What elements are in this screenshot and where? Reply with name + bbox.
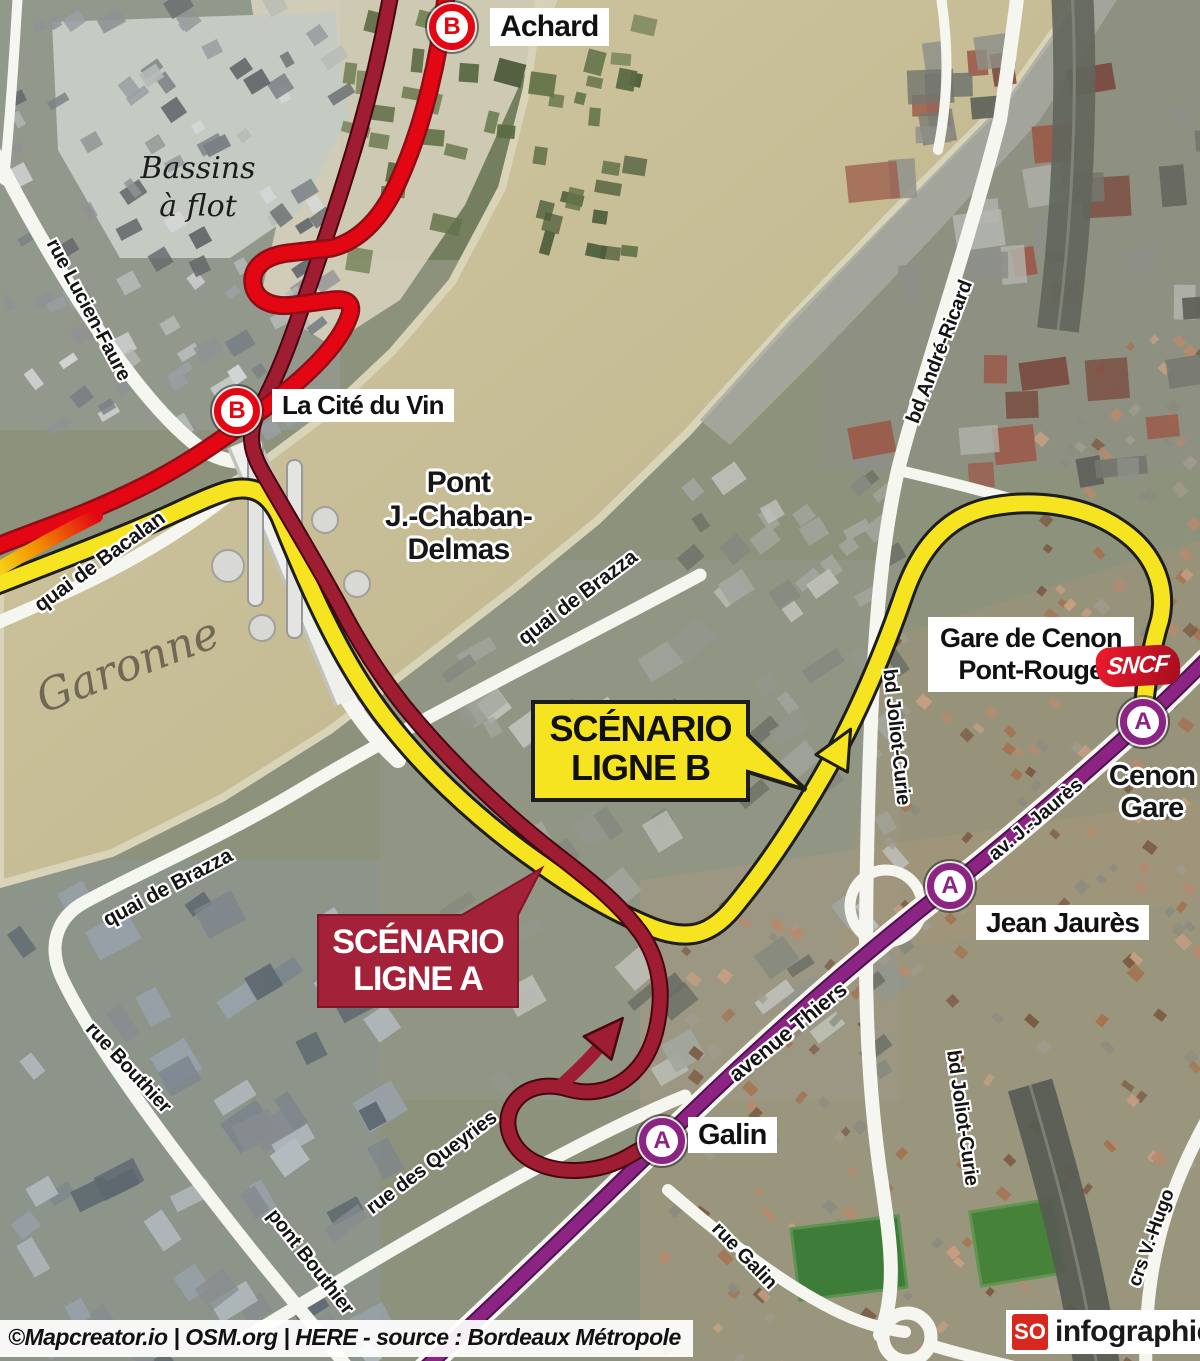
so-infographie-logo: SO infographie <box>1006 1310 1200 1354</box>
street-label: bd Joliot-Curie <box>941 1049 983 1187</box>
street-label: crs V.-Hugo <box>1124 1187 1179 1290</box>
street-label: avenue Thiers <box>724 977 852 1088</box>
station-label: Achard <box>490 8 609 46</box>
bassins-a-flot-label: Bassins à flot <box>128 150 268 225</box>
station-marker-a: A <box>1120 699 1166 745</box>
station-marker-a: A <box>927 863 973 909</box>
street-label: bd Joliot-Curie <box>877 668 914 806</box>
credit-text: ©Mapcreator.io | OSM.org | HERE - source… <box>8 1324 681 1350</box>
credit-bar: ©Mapcreator.io | OSM.org | HERE - source… <box>0 1320 693 1357</box>
callout-ligne-a: SCÉNARIO LIGNE A <box>318 924 518 997</box>
street-label: rue Galin <box>707 1218 782 1294</box>
callout-ligne-b: SCÉNARIO LIGNE B <box>533 710 748 788</box>
labels-overlay: Bassins à flot Garonne Pont J.-Chaban- D… <box>0 0 1200 1361</box>
station-marker-b: B <box>429 4 475 50</box>
station-label: Jean Jaurès <box>976 905 1149 940</box>
map-infographic: Bassins à flot Garonne Pont J.-Chaban- D… <box>0 0 1200 1361</box>
station-label: La Cité du Vin <box>272 389 454 422</box>
bridge-label: Pont J.-Chaban- Delmas <box>385 466 532 567</box>
street-label: pont Bouthier <box>262 1205 358 1319</box>
so-logo-text: infographie <box>1055 1315 1200 1349</box>
garonne-label: Garonne <box>29 607 226 723</box>
street-label: quai de Brazza <box>99 844 236 932</box>
so-logo-icon: SO <box>1012 1314 1048 1350</box>
station-label: Galin <box>688 1117 777 1153</box>
station-marker-a: A <box>639 1118 685 1164</box>
cenon-gare-label: Cenon Gare <box>1102 760 1200 825</box>
street-label: rue Lucien-Faure <box>41 235 135 385</box>
street-label: av. J.-Jaurès <box>984 774 1088 866</box>
station-marker-b: B <box>214 388 260 434</box>
street-label: quai de Brazza <box>514 545 643 650</box>
street-label: quai de Bacalan <box>30 507 170 618</box>
street-label: rue des Queyries <box>362 1106 502 1219</box>
street-label: bd André-Ricard <box>902 277 978 427</box>
sncf-badge: SNCF <box>1095 644 1181 688</box>
sncf-text: SNCF <box>1106 650 1170 681</box>
street-label: rue Bouthier <box>80 1018 175 1118</box>
